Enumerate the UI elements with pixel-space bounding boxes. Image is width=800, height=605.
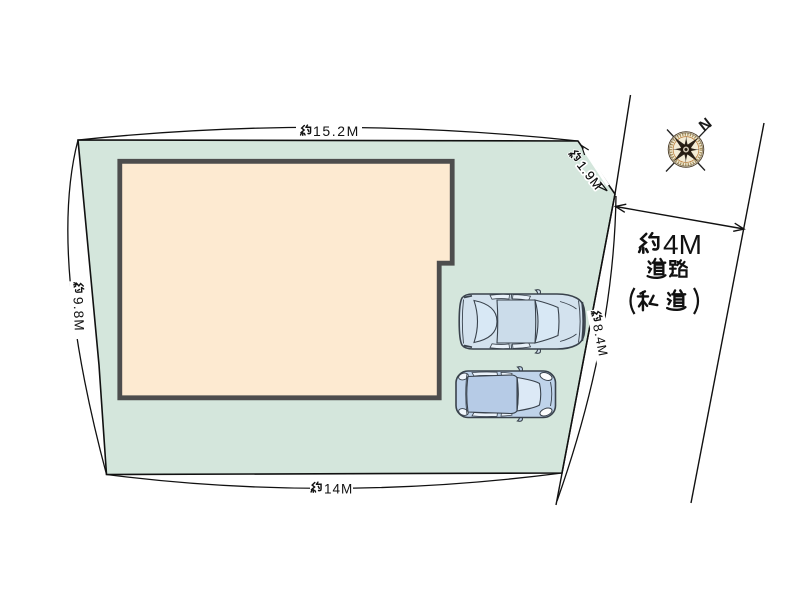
svg-text:4M: 4M [663,229,702,260]
svg-text:9.8M: 9.8M [71,297,87,332]
svg-text:8.4M: 8.4M [590,323,611,358]
svg-text:15.2M: 15.2M [313,123,360,139]
svg-text:14M: 14M [324,482,353,497]
svg-text:N: N [696,115,715,135]
